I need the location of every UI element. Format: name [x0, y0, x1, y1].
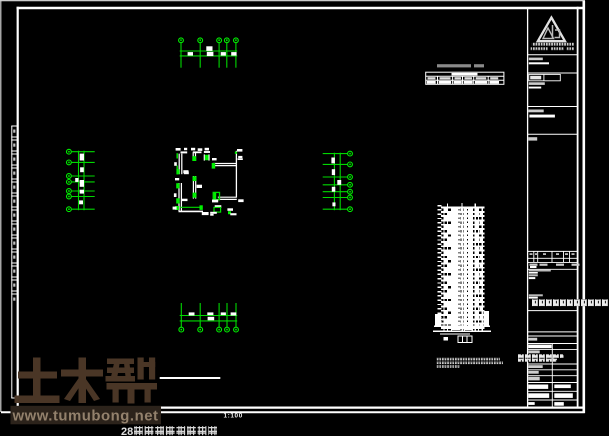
svg-text:28: 28 [121, 426, 133, 436]
svg-text:www.tumubong.net: www.tumubong.net [11, 409, 158, 425]
svg-text:1:100: 1:100 [224, 413, 243, 420]
